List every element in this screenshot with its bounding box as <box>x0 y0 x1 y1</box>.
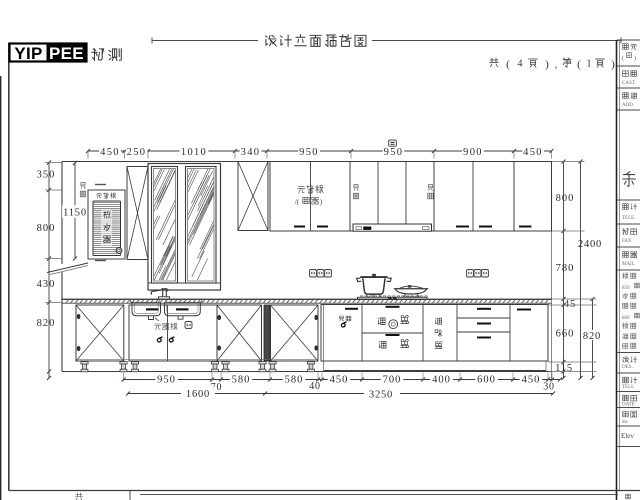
svg-text:1150: 1150 <box>63 208 87 219</box>
svg-text:(: ( <box>506 59 510 71</box>
svg-text:450: 450 <box>523 147 543 158</box>
svg-text:430: 430 <box>37 279 56 290</box>
svg-text:YIP: YIP <box>14 44 42 63</box>
svg-text:600: 600 <box>477 375 496 386</box>
svg-text:dw: dw <box>622 420 629 425</box>
svg-text:(: ( <box>622 55 624 62</box>
svg-text:4: 4 <box>518 59 523 70</box>
svg-text:30: 30 <box>543 382 555 393</box>
svg-text:40: 40 <box>309 381 321 392</box>
svg-text:820: 820 <box>37 318 56 329</box>
svg-text:350: 350 <box>37 170 56 181</box>
svg-text:400: 400 <box>432 375 451 386</box>
svg-text:2400: 2400 <box>578 239 602 250</box>
svg-text:TELL: TELL <box>622 385 634 390</box>
svg-text:800: 800 <box>37 223 56 234</box>
svg-text:): ) <box>545 59 549 71</box>
svg-text:900: 900 <box>463 147 483 158</box>
svg-text:780: 780 <box>556 263 575 274</box>
svg-text:950: 950 <box>299 147 319 158</box>
svg-text:DATE: DATE <box>622 403 635 408</box>
svg-text:,: , <box>555 60 558 71</box>
svg-text:820: 820 <box>583 331 601 342</box>
svg-text:3250: 3250 <box>369 390 393 401</box>
svg-text:250: 250 <box>127 147 147 158</box>
svg-text:850: 850 <box>622 286 630 291</box>
svg-text:ADD.: ADD. <box>622 103 634 108</box>
svg-text:450: 450 <box>522 375 541 386</box>
svg-text:PEE: PEE <box>49 44 84 63</box>
svg-text:580: 580 <box>285 375 304 386</box>
svg-text:800: 800 <box>622 316 630 321</box>
svg-text:450: 450 <box>330 375 349 386</box>
svg-text:660: 660 <box>556 329 575 340</box>
svg-text:700: 700 <box>383 375 402 386</box>
svg-text:DES.: DES. <box>622 365 633 370</box>
svg-text:TELE.: TELE. <box>622 216 635 221</box>
svg-text:): ) <box>634 55 636 62</box>
svg-text:45: 45 <box>564 299 576 310</box>
svg-text:950: 950 <box>384 147 404 158</box>
svg-text:340: 340 <box>241 147 261 158</box>
svg-text:FAX: FAX <box>622 239 632 244</box>
svg-text:Elev: Elev <box>621 432 634 440</box>
svg-text:(: ( <box>577 59 581 71</box>
svg-text:1600: 1600 <box>186 389 210 400</box>
svg-text:450: 450 <box>100 147 120 158</box>
svg-text:800: 800 <box>556 193 575 204</box>
svg-text:MAIL: MAIL <box>622 262 635 267</box>
svg-text:1: 1 <box>587 59 592 70</box>
svg-text:115: 115 <box>555 363 573 374</box>
svg-text:950: 950 <box>157 375 176 386</box>
svg-text:/(: /( <box>295 198 300 206</box>
svg-text:1010: 1010 <box>181 147 207 158</box>
svg-text:580: 580 <box>232 375 251 386</box>
svg-text:): ) <box>611 59 615 71</box>
svg-text:CAST.: CAST. <box>622 81 636 86</box>
